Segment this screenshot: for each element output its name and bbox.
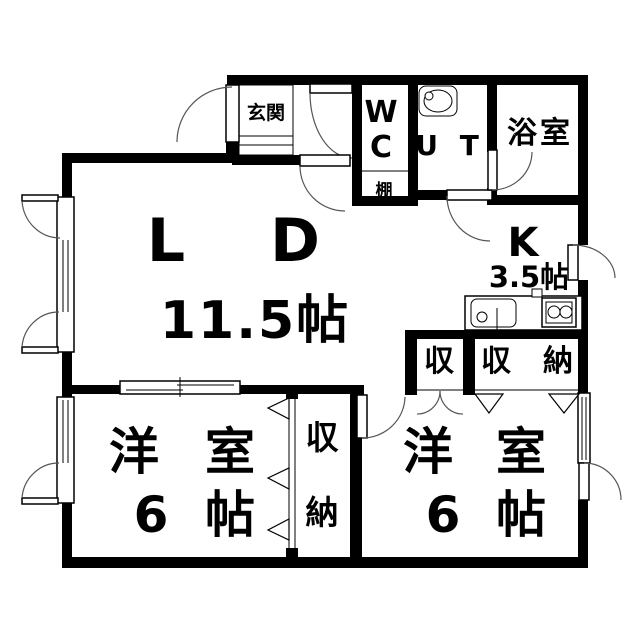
label-storage-wide-1: 収 (481, 344, 512, 379)
label-room1-num: 6 (134, 486, 169, 544)
window-frame (578, 393, 590, 463)
label-wc-line1: W (364, 95, 397, 130)
storage-small-double-doors (417, 391, 463, 414)
window-ld-left (22, 195, 74, 353)
label-room2-char1: 洋 (403, 423, 453, 481)
label-ld-d: D (270, 206, 320, 276)
floor-plan-drawing: 玄関 W C U T 浴室 棚 L D 11.5帖 K 3.5帖 収 収 納 収… (0, 0, 639, 640)
wall-top (227, 75, 588, 85)
door-leaf (310, 84, 352, 93)
wall-right-upper (578, 85, 588, 245)
label-room2-unit: 帖 (496, 486, 546, 544)
stove-burner-right (560, 306, 572, 318)
door-leaf (447, 190, 492, 200)
label-shelf: 棚 (376, 180, 393, 201)
door-arc (362, 397, 405, 438)
wall-left-b (62, 352, 72, 397)
kitchen-hall-door (447, 190, 492, 241)
window-frame (57, 397, 74, 503)
hall-door (310, 84, 352, 158)
casement-arc-bottom (22, 312, 59, 347)
door-arc-right (440, 391, 463, 414)
window-room1-left (22, 397, 74, 504)
folding-door-mark (268, 519, 289, 540)
door-arc-left (417, 391, 440, 414)
wall-ld-top (62, 153, 232, 163)
wall-room1-top-a (72, 385, 120, 394)
kitchen-counter-unit (465, 289, 582, 331)
kitchen-sink (471, 299, 516, 327)
wall-room1-top-b (240, 385, 360, 394)
door-arc (310, 93, 352, 158)
wall-room2-stub-b (405, 377, 417, 395)
label-entrance: 玄関 (247, 101, 285, 124)
casement-leaf (579, 463, 589, 500)
label-room1-char2: 室 (205, 423, 255, 481)
floor-plan-canvas: 玄関 W C U T 浴室 棚 L D 11.5帖 K 3.5帖 収 収 納 収… (0, 0, 639, 640)
window-frame (57, 197, 74, 352)
door-arc (573, 245, 615, 278)
wall-bath-left-upper (487, 75, 497, 152)
label-wc-line2: C (370, 130, 392, 165)
wall-left-c (62, 503, 72, 557)
closet1-folding-doors (268, 398, 289, 540)
casement-leaf (22, 498, 58, 504)
stove-burner-left (548, 306, 560, 318)
room-hall (293, 85, 352, 155)
window-room2-right (578, 393, 621, 500)
door-arc (300, 166, 345, 211)
label-utility: U T (415, 129, 485, 162)
wall-storage-divider (463, 330, 475, 395)
closet1-stub-bottom (286, 548, 298, 557)
kitchen-back-door (568, 245, 615, 280)
label-ld-size: 11.5帖 (160, 291, 350, 351)
door-arc (447, 196, 490, 241)
sink-drain (477, 312, 487, 322)
door-arc (492, 152, 532, 190)
label-storage-small: 収 (424, 344, 455, 379)
bathroom-door (488, 150, 532, 190)
label-closet-vertical-2: 納 (306, 493, 339, 532)
wall-storage-top (405, 330, 588, 339)
folding-door-mark (549, 394, 579, 413)
label-kitchen-size: 3.5帖 (489, 260, 569, 294)
label-room2-char2: 室 (496, 423, 546, 481)
casement-arc-top (22, 201, 60, 238)
door-leaf (226, 85, 239, 142)
entry-door (177, 85, 239, 142)
label-bathroom: 浴室 (507, 116, 573, 151)
wall-ut-bottom (408, 190, 448, 200)
folding-door-mark (475, 394, 503, 413)
ld-door (300, 155, 350, 211)
casement-leaf-bottom (22, 347, 58, 353)
door-leaf (568, 245, 578, 280)
ld-room1-sliding-door (120, 377, 240, 397)
label-room2-num: 6 (426, 486, 461, 544)
wall-bath-bottom (487, 195, 588, 205)
wall-below-entry (232, 155, 302, 165)
wall-bottom (62, 557, 588, 568)
door-leaf (488, 150, 497, 190)
casement-arc (22, 463, 59, 498)
wall-wc-left (352, 85, 362, 205)
folding-door-mark (268, 468, 289, 489)
vanity-sink (419, 86, 457, 116)
label-room1-char1: 洋 (109, 423, 159, 481)
casement-leaf-top (22, 195, 58, 201)
door-leaf (300, 155, 350, 166)
label-closet-vertical-1: 収 (306, 418, 340, 457)
vanity-faucet (425, 92, 433, 100)
label-ld-l: L (147, 206, 185, 276)
room2-door (357, 395, 405, 438)
label-storage-wide-2: 納 (543, 344, 573, 379)
folding-door-mark (268, 398, 289, 419)
label-room1-unit: 帖 (205, 486, 255, 544)
door-leaf (357, 395, 367, 438)
storage-wide-folding-doors (475, 394, 579, 413)
door-arc (177, 87, 232, 142)
